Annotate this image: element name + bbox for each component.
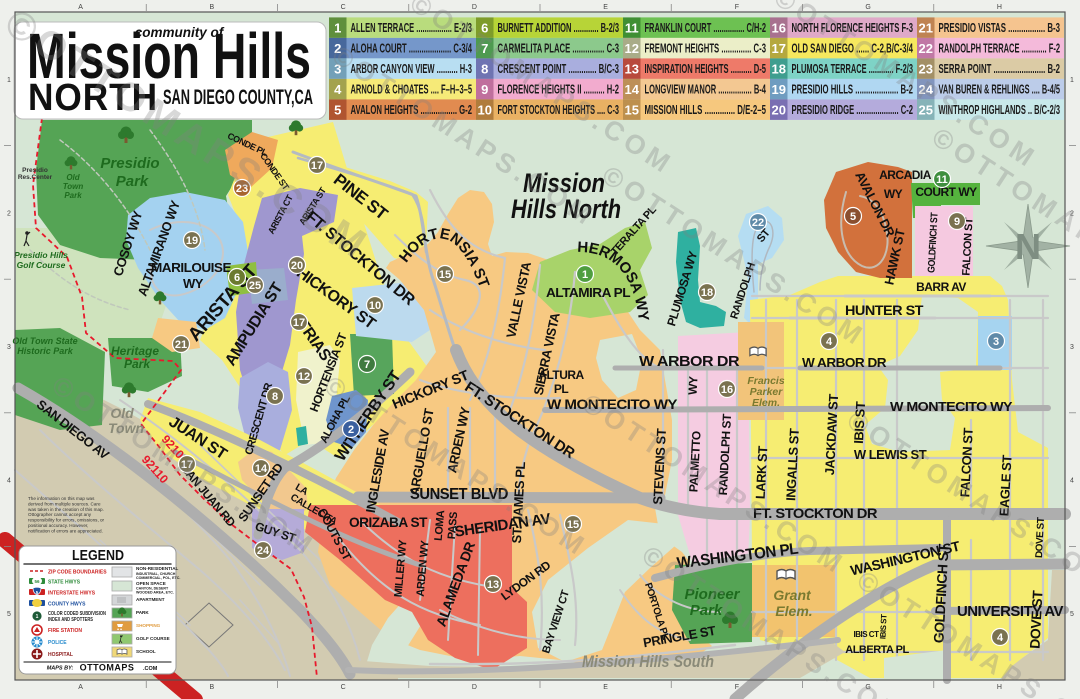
svg-text:5: 5 (7, 611, 11, 618)
svg-text:GOLF COURSE: GOLF COURSE (136, 636, 170, 641)
svg-text:Presidio Hills: Presidio Hills (14, 250, 68, 260)
svg-text:Elem.: Elem. (752, 397, 780, 409)
svg-text:LONGVIEW MANOR ...............: LONGVIEW MANOR ................ B-4 (645, 83, 767, 97)
svg-text:MARILOUISE: MARILOUISE (151, 260, 232, 275)
svg-text:MAPS BY:: MAPS BY: (47, 666, 74, 672)
svg-text:Ottographer cannot accept any: Ottographer cannot accept any (28, 512, 92, 517)
svg-text:5: 5 (1070, 611, 1074, 618)
svg-text:IBIS ST: IBIS ST (878, 614, 888, 640)
svg-text:COURT WY: COURT WY (915, 185, 977, 199)
svg-text:D: D (472, 4, 477, 11)
svg-text:ALBERTA PL: ALBERTA PL (845, 644, 909, 656)
svg-text:W ARBOR DR: W ARBOR DR (802, 355, 887, 370)
svg-text:D: D (472, 684, 477, 691)
svg-text:4: 4 (826, 336, 833, 348)
svg-text:F: F (735, 684, 739, 691)
svg-text:H: H (997, 4, 1002, 11)
svg-text:OPEN SPACE: OPEN SPACE (136, 581, 166, 586)
svg-text:21: 21 (919, 20, 933, 35)
svg-text:HUNTER ST: HUNTER ST (845, 302, 924, 318)
svg-text:15: 15 (625, 102, 639, 117)
svg-text:9: 9 (954, 216, 960, 228)
svg-text:11: 11 (625, 20, 639, 35)
svg-text:25: 25 (249, 280, 261, 292)
svg-text:RANDOLPH TERRACE ............: RANDOLPH TERRACE ............ F-2 (939, 42, 1061, 56)
svg-text:18: 18 (772, 61, 786, 76)
svg-text:5: 5 (334, 102, 341, 117)
svg-text:Golf Course: Golf Course (17, 260, 66, 270)
svg-text:12: 12 (625, 41, 639, 56)
svg-text:ARCADIA: ARCADIA (879, 168, 932, 182)
svg-text:SCHOOL: SCHOOL (136, 649, 156, 654)
svg-text:UNIVERSITY AV: UNIVERSITY AV (957, 603, 1063, 620)
svg-text:INSPIRATION HEIGHTS ..........: INSPIRATION HEIGHTS .......... D-5 (645, 62, 767, 76)
svg-text:16: 16 (772, 20, 786, 35)
svg-text:B: B (210, 4, 215, 11)
svg-text:Park: Park (116, 173, 149, 190)
svg-text:Park: Park (64, 191, 82, 200)
svg-text:notification of errors are app: notification of errors are appreciated. (28, 528, 103, 533)
svg-text:17: 17 (311, 160, 323, 172)
svg-text:responsibility for errors, omi: responsibility for errors, omissions, or (28, 518, 105, 523)
svg-text:Park: Park (124, 357, 151, 371)
svg-text:1: 1 (7, 77, 11, 84)
svg-text:4: 4 (1070, 478, 1074, 485)
svg-text:ZIP CODE BOUNDARIES: ZIP CODE BOUNDARIES (48, 570, 107, 576)
svg-text:B: B (210, 684, 215, 691)
svg-text:22: 22 (752, 217, 764, 229)
svg-text:POLICE: POLICE (48, 640, 67, 646)
svg-text:WOODED AREA, ETC.: WOODED AREA, ETC. (136, 591, 174, 595)
svg-text:SAN DIEGO COUNTY,CA: SAN DIEGO COUNTY,CA (163, 86, 313, 109)
svg-text:WY: WY (686, 376, 701, 396)
svg-text:11: 11 (936, 174, 948, 186)
svg-text:2: 2 (348, 424, 354, 436)
svg-text:LEGEND: LEGEND (72, 547, 124, 564)
svg-text:Grant: Grant (773, 587, 812, 603)
svg-text:E: E (603, 4, 608, 11)
svg-text:Old Town State: Old Town State (12, 336, 77, 346)
svg-text:14: 14 (255, 463, 268, 475)
svg-text:PASS: PASS (446, 512, 460, 540)
svg-text:ALTAMIRA PL: ALTAMIRA PL (546, 285, 631, 300)
svg-text:9: 9 (481, 82, 488, 97)
svg-text:4: 4 (334, 82, 342, 97)
svg-text:FREMONT HEIGHTS ..............: FREMONT HEIGHTS .............. C-3 (645, 42, 767, 56)
svg-text:3: 3 (7, 344, 11, 351)
svg-text:12: 12 (298, 371, 310, 383)
svg-text:STATE HWYS: STATE HWYS (48, 580, 81, 586)
svg-text:Mission Hills South: Mission Hills South (582, 652, 714, 671)
svg-text:5: 5 (850, 211, 856, 223)
svg-text:Elem.: Elem. (775, 603, 812, 619)
svg-text:10: 10 (478, 102, 492, 117)
svg-text:C: C (341, 684, 346, 691)
svg-text:21: 21 (175, 339, 187, 351)
svg-text:E: E (603, 684, 608, 691)
svg-text:14: 14 (625, 82, 640, 97)
svg-text:56: 56 (34, 579, 40, 584)
svg-text:7: 7 (364, 359, 370, 371)
svg-text:OTTOMAPS: OTTOMAPS (80, 663, 135, 673)
svg-text:SHOPPING: SHOPPING (136, 623, 161, 628)
svg-text:15: 15 (439, 269, 451, 281)
svg-text:2: 2 (7, 210, 11, 217)
svg-text:10: 10 (369, 300, 381, 312)
svg-text:1: 1 (334, 20, 341, 35)
svg-text:N: N (1015, 226, 1041, 267)
svg-text:17: 17 (772, 41, 786, 56)
svg-text:ALTURA: ALTURA (538, 368, 584, 382)
svg-text:derived from multiple sources.: derived from multiple sources. Care (28, 501, 101, 506)
svg-text:positional accuracy. However,: positional accuracy. However, (28, 523, 88, 528)
svg-text:13: 13 (625, 61, 639, 76)
svg-text:1: 1 (1070, 77, 1074, 84)
svg-text:FIRE STATION: FIRE STATION (48, 628, 82, 634)
svg-text:The information on this map wa: The information on this map was (28, 496, 95, 501)
svg-text:MISSION HILLS .............. D: MISSION HILLS .............. D/E-2–5 (645, 103, 767, 117)
svg-text:Res.Center: Res.Center (18, 174, 53, 181)
svg-text:was taken in the creation of t: was taken in the creation of this map. (28, 507, 104, 512)
svg-text:PRESIDIO VISTAS ..............: PRESIDIO VISTAS ................. B-3 (939, 21, 1061, 35)
svg-text:1: 1 (582, 269, 588, 281)
svg-text:F: F (735, 4, 739, 11)
svg-text:Historic Park: Historic Park (17, 346, 74, 356)
svg-text:ORIZABA ST: ORIZABA ST (349, 514, 428, 530)
svg-text:LARK ST: LARK ST (753, 445, 771, 499)
svg-text:Town: Town (63, 182, 84, 191)
svg-text:3: 3 (1070, 344, 1074, 351)
svg-text:IBIS CT: IBIS CT (854, 630, 880, 639)
svg-text:3: 3 (993, 336, 999, 348)
svg-text:WY: WY (884, 187, 903, 201)
svg-text:22: 22 (919, 41, 933, 56)
svg-text:PARK: PARK (136, 610, 149, 615)
svg-text:FRANKLIN COURT ...............: FRANKLIN COURT ............... C/H-2 (645, 21, 767, 35)
svg-text:Heritage: Heritage (111, 344, 159, 358)
svg-text:PRESIDIO RIDGE ...............: PRESIDIO RIDGE .................... C-2 (792, 103, 914, 117)
svg-text:INTERSTATE HWYS: INTERSTATE HWYS (48, 591, 96, 597)
svg-text:19: 19 (772, 82, 786, 97)
svg-text:Old: Old (66, 173, 80, 182)
svg-text:WY: WY (183, 276, 204, 291)
svg-text:17: 17 (293, 317, 305, 329)
svg-text:W ARBOR DR: W ARBOR DR (639, 353, 740, 370)
svg-text:19: 19 (186, 235, 198, 247)
svg-text:APARTMENT: APARTMENT (136, 597, 165, 602)
svg-text:13: 13 (487, 579, 499, 591)
svg-text:16: 16 (721, 384, 733, 396)
svg-text:20: 20 (291, 260, 303, 272)
svg-text:HOSPITAL: HOSPITAL (48, 652, 73, 658)
svg-text:DOVE ST: DOVE ST (1027, 589, 1046, 649)
svg-text:A: A (78, 4, 83, 11)
svg-text:Presidio: Presidio (100, 155, 159, 172)
svg-text:PL: PL (554, 382, 569, 396)
svg-text:Presidio: Presidio (22, 167, 48, 174)
svg-text:BURNETT ADDITION ............: BURNETT ADDITION ............ B-2/3 (498, 21, 620, 35)
svg-text:20: 20 (772, 102, 786, 117)
svg-text:6: 6 (234, 272, 240, 284)
svg-text:COUNTY HWYS: COUNTY HWYS (48, 602, 86, 608)
svg-text:COMMERCIAL, POL, ETC.: COMMERCIAL, POL, ETC. (136, 576, 180, 580)
svg-text:BARR AV: BARR AV (916, 280, 966, 294)
svg-text:G: G (865, 4, 870, 11)
svg-text:W MONTECITO WY: W MONTECITO WY (890, 399, 1013, 414)
svg-text:8: 8 (272, 391, 278, 403)
svg-text:4: 4 (7, 478, 11, 485)
svg-text:24: 24 (257, 545, 270, 557)
svg-text:NON-RESIDENTIAL: NON-RESIDENTIAL (136, 566, 179, 571)
svg-text:A: A (78, 684, 83, 691)
svg-text:4: 4 (997, 632, 1004, 644)
svg-text:INDEX AND SPOTTERS: INDEX AND SPOTTERS (48, 617, 94, 623)
svg-text:1: 1 (36, 614, 39, 620)
svg-text:C: C (341, 4, 346, 11)
svg-text:18: 18 (701, 287, 713, 299)
svg-text:SERRA POINT ..................: SERRA POINT ........................ B-2 (939, 62, 1061, 76)
svg-text:.COM: .COM (143, 666, 158, 672)
